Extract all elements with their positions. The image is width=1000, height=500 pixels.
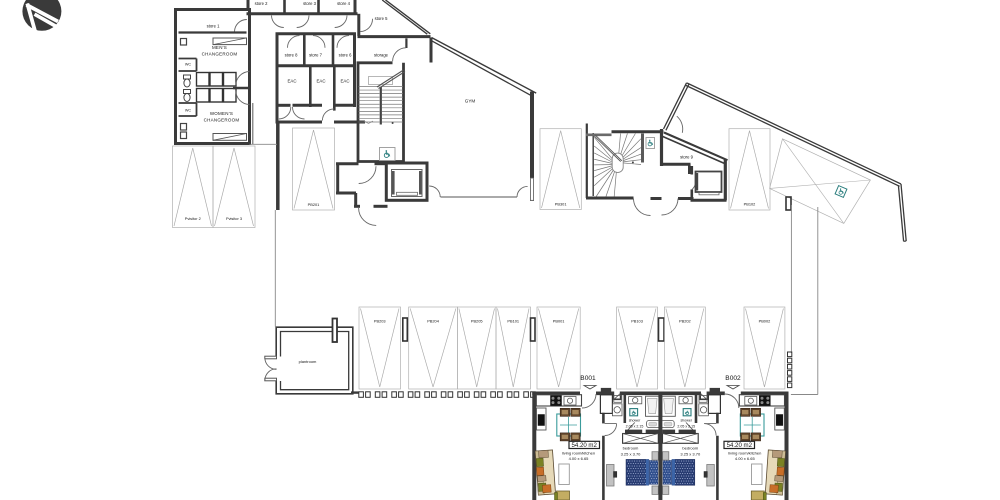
svg-text:2.05 x 2.15: 2.05 x 2.15 <box>677 424 695 428</box>
svg-text:54.20 m2: 54.20 m2 <box>727 442 753 449</box>
svg-text:shower: shower <box>681 419 693 423</box>
svg-text:storage: storage <box>374 53 389 58</box>
svg-text:store 2: store 2 <box>255 1 268 6</box>
svg-text:shower: shower <box>629 419 641 423</box>
svg-text:4.00 x 6.65: 4.00 x 6.65 <box>569 456 590 461</box>
svg-text:PB001: PB001 <box>553 319 565 324</box>
svg-text:CHANGEROOM: CHANGEROOM <box>204 117 240 122</box>
svg-text:store 9: store 9 <box>680 155 693 160</box>
svg-text:CHANGEROOM: CHANGEROOM <box>202 51 238 56</box>
svg-text:PB201: PB201 <box>308 202 320 207</box>
svg-text:PB101: PB101 <box>507 319 519 324</box>
svg-text:WC: WC <box>185 63 191 67</box>
svg-text:54.20 m2: 54.20 m2 <box>571 442 597 449</box>
svg-text:WOMEN'S: WOMEN'S <box>210 111 233 116</box>
svg-text:store 1: store 1 <box>207 24 220 29</box>
svg-text:EAC: EAC <box>340 79 349 84</box>
svg-text:living room/kitchen: living room/kitchen <box>728 451 761 456</box>
svg-text:store 5: store 5 <box>375 16 388 21</box>
svg-text:B001: B001 <box>580 375 596 382</box>
svg-text:store 3: store 3 <box>303 1 316 6</box>
svg-text:MEN'S: MEN'S <box>212 45 227 50</box>
svg-text:Pvisitor 2: Pvisitor 2 <box>185 216 201 221</box>
svg-text:B002: B002 <box>725 375 741 382</box>
svg-text:PB202: PB202 <box>679 319 691 324</box>
svg-text:living room/kitchen: living room/kitchen <box>562 451 595 456</box>
svg-text:PB204: PB204 <box>427 319 440 324</box>
svg-text:store 8: store 8 <box>285 53 298 58</box>
svg-text:bedroom: bedroom <box>682 446 698 451</box>
svg-text:PB103: PB103 <box>631 319 643 324</box>
svg-text:GYM: GYM <box>465 99 476 104</box>
svg-text:3.25 x 3.70: 3.25 x 3.70 <box>680 451 701 456</box>
svg-text:4.00 x 6.65: 4.00 x 6.65 <box>735 456 756 461</box>
svg-text:PB203: PB203 <box>374 319 386 324</box>
svg-text:3.25 x 3.70: 3.25 x 3.70 <box>621 451 642 456</box>
svg-text:2.05 x 2.15: 2.05 x 2.15 <box>626 424 644 428</box>
svg-text:EAC: EAC <box>316 79 325 84</box>
svg-text:plantroom: plantroom <box>299 359 317 364</box>
svg-text:PB102: PB102 <box>744 202 756 207</box>
svg-text:PB301: PB301 <box>555 202 567 207</box>
svg-text:store 7: store 7 <box>309 53 322 58</box>
svg-text:WC: WC <box>185 109 191 113</box>
svg-text:PB002: PB002 <box>759 319 771 324</box>
svg-text:PB205: PB205 <box>471 319 483 324</box>
svg-text:EAC: EAC <box>287 79 296 84</box>
svg-text:bedroom: bedroom <box>623 446 639 451</box>
svg-text:store 6: store 6 <box>339 53 352 58</box>
svg-text:store 4: store 4 <box>337 1 350 6</box>
svg-text:Pvisitor 3: Pvisitor 3 <box>226 216 242 221</box>
